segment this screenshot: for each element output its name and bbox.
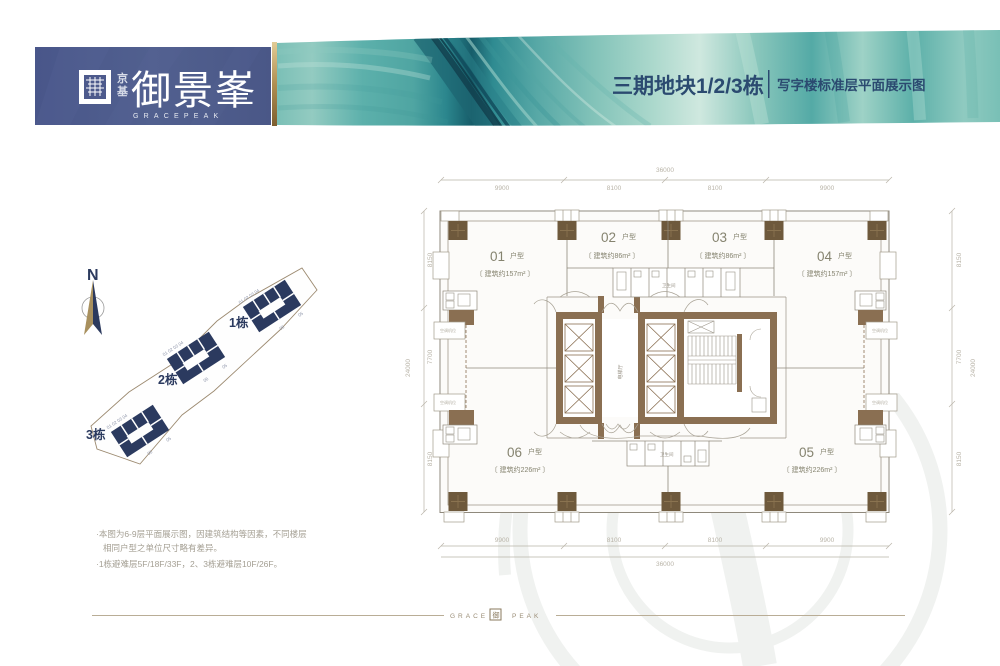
svg-text:三期地块1/2/3栋: 三期地块1/2/3栋 — [612, 74, 764, 98]
svg-text:8150: 8150 — [427, 451, 434, 466]
svg-text:〔 建筑约86m² 〕: 〔 建筑约86m² 〕 — [585, 251, 640, 260]
svg-text:京: 京 — [117, 71, 128, 85]
svg-text:7700: 7700 — [427, 349, 434, 364]
svg-text:9900: 9900 — [820, 185, 835, 192]
svg-text:空调机位: 空调机位 — [872, 327, 888, 333]
svg-text:9900: 9900 — [495, 185, 510, 192]
svg-text:04: 04 — [817, 249, 833, 264]
svg-text:户型: 户型 — [733, 232, 747, 241]
svg-text:06: 06 — [507, 445, 522, 460]
svg-text:2栋: 2栋 — [158, 372, 178, 387]
svg-text:户型: 户型 — [820, 447, 834, 456]
svg-text:·1栋避难层5F/18F/33F，2、3栋避难层10F/26: ·1栋避难层5F/18F/33F，2、3栋避难层10F/26F。 — [96, 559, 282, 569]
svg-text:户型: 户型 — [838, 251, 852, 260]
svg-text:8100: 8100 — [708, 185, 723, 192]
svg-text:写字楼标准层平面展示图: 写字楼标准层平面展示图 — [777, 77, 926, 93]
svg-text:3栋: 3栋 — [86, 427, 106, 442]
svg-text:〔 建筑约226m² 〕: 〔 建筑约226m² 〕 — [783, 465, 842, 474]
svg-text:8150: 8150 — [956, 252, 963, 267]
svg-text:空调机位: 空调机位 — [440, 327, 456, 333]
svg-text:24000: 24000 — [405, 359, 412, 377]
svg-text:36000: 36000 — [656, 167, 674, 174]
svg-text:9900: 9900 — [495, 537, 510, 544]
svg-text:电梯厅: 电梯厅 — [617, 364, 624, 379]
svg-text:空调机位: 空调机位 — [440, 399, 456, 405]
svg-text:空调机位: 空调机位 — [872, 399, 888, 405]
svg-text:01: 01 — [490, 249, 505, 264]
svg-text:8100: 8100 — [607, 185, 622, 192]
svg-text:卫生间: 卫生间 — [660, 451, 674, 458]
svg-text:8150: 8150 — [427, 252, 434, 267]
svg-text:〔 建筑约157m² 〕: 〔 建筑约157m² 〕 — [798, 269, 857, 278]
svg-text:户型: 户型 — [528, 447, 542, 456]
svg-text:GRACEPEAK: GRACEPEAK — [133, 113, 223, 120]
svg-text:9900: 9900 — [820, 537, 835, 544]
svg-text:02: 02 — [601, 230, 616, 245]
svg-text:7700: 7700 — [956, 349, 963, 364]
svg-text:基: 基 — [116, 84, 129, 98]
svg-text:〔 建筑约157m² 〕: 〔 建筑约157m² 〕 — [476, 269, 535, 278]
svg-text:05: 05 — [799, 445, 814, 460]
svg-text:·本图为6-9层平面展示图，因建筑结构等因素，不同楼层: ·本图为6-9层平面展示图，因建筑结构等因素，不同楼层 — [96, 529, 307, 539]
svg-text:御: 御 — [493, 611, 500, 620]
svg-text:〔 建筑约86m² 〕: 〔 建筑约86m² 〕 — [696, 251, 751, 260]
svg-text:御景峯: 御景峯 — [131, 69, 257, 113]
svg-text:户型: 户型 — [510, 251, 524, 260]
svg-text:36000: 36000 — [656, 561, 674, 568]
svg-text:户型: 户型 — [622, 232, 636, 241]
svg-text:GRACE: GRACE — [450, 613, 488, 620]
svg-text:8150: 8150 — [956, 451, 963, 466]
svg-text:1栋: 1栋 — [229, 315, 249, 330]
svg-text:8100: 8100 — [607, 537, 622, 544]
svg-text:PEAK: PEAK — [512, 613, 541, 620]
svg-text:相同户型之单位尺寸略有差异。: 相同户型之单位尺寸略有差异。 — [103, 543, 222, 553]
svg-text:03: 03 — [712, 230, 727, 245]
svg-text:8100: 8100 — [708, 537, 723, 544]
svg-text:24000: 24000 — [970, 359, 977, 377]
svg-text:卫生间: 卫生间 — [662, 282, 676, 289]
svg-text:〔 建筑约226m² 〕: 〔 建筑约226m² 〕 — [491, 465, 550, 474]
